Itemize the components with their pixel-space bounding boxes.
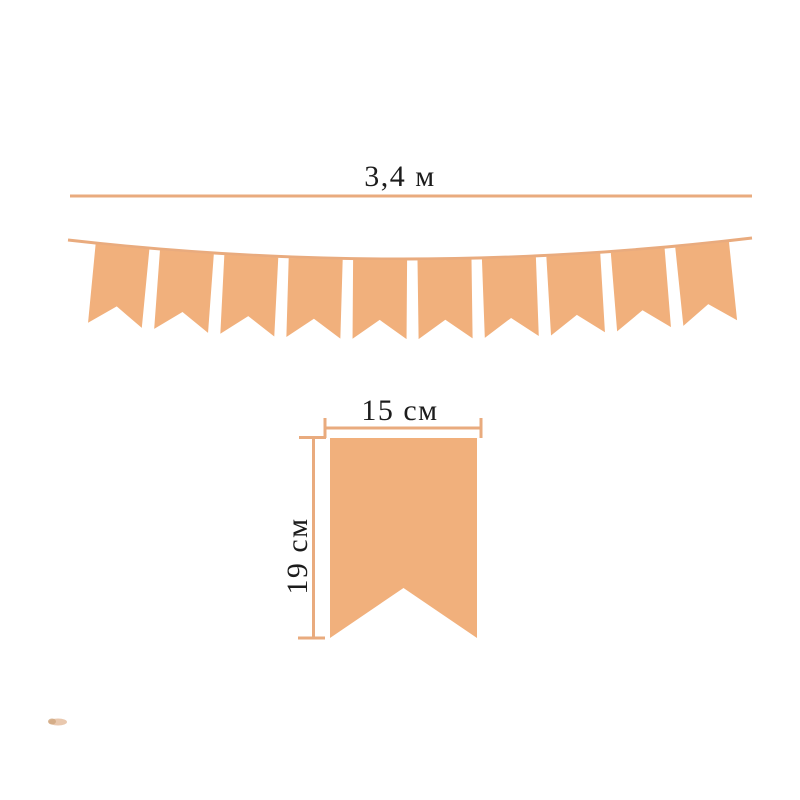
flag-height-label: 19 см xyxy=(281,517,314,594)
smudge-shape-dark xyxy=(48,719,56,725)
garland xyxy=(68,238,752,339)
garland-flag xyxy=(154,250,214,333)
diagram-canvas: 3,4 м 15 см xyxy=(0,0,800,800)
flag-width-label: 15 см xyxy=(361,394,438,427)
garland-flag xyxy=(546,253,605,335)
single-flag-diagram: 15 см 19 см xyxy=(281,394,481,638)
garland-length-label: 3,4 м xyxy=(364,160,435,193)
flag-width-dimension: 15 см xyxy=(325,394,481,438)
garland-flag xyxy=(675,242,737,326)
garland-flag xyxy=(418,259,473,339)
garland-flag xyxy=(482,257,539,338)
single-flag xyxy=(330,438,477,638)
garland-flag xyxy=(286,258,342,339)
print-artifact-smudge xyxy=(48,719,67,726)
garland-flags xyxy=(88,242,737,339)
garland-flag xyxy=(88,244,149,328)
bunting-dimension-diagram: 3,4 м 15 см xyxy=(0,0,800,800)
garland-flag xyxy=(353,260,408,339)
garland-flag xyxy=(220,255,278,337)
garland-length-dimension: 3,4 м xyxy=(70,160,752,196)
flag-height-dimension: 19 см xyxy=(281,437,326,638)
garland-flag xyxy=(611,248,671,331)
